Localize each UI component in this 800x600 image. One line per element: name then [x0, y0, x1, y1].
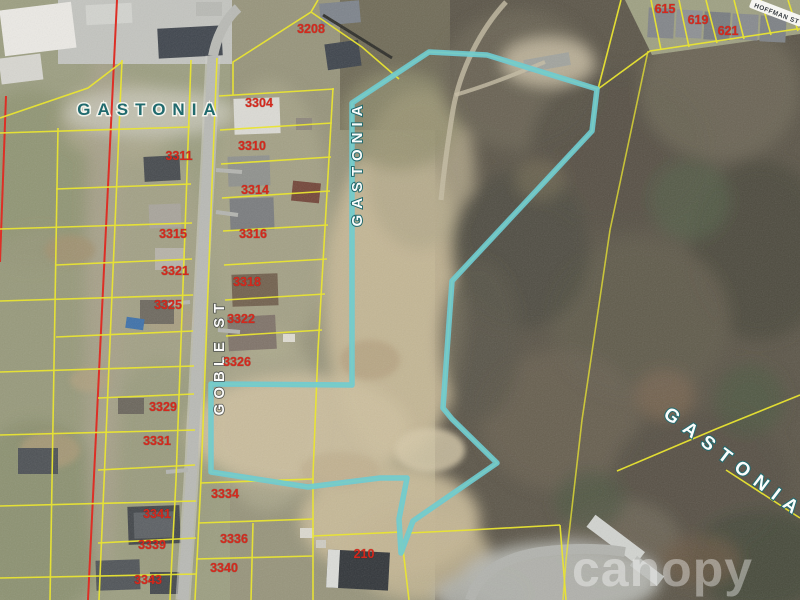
parcel-number-label: 3336	[220, 532, 248, 546]
parcel-number-label: 3325	[154, 298, 182, 312]
parcel-number-label: 3310	[238, 139, 266, 153]
map-canvas[interactable]: GASTONIAGASTONIAGASTONIA GOBLE STHOFFMAN…	[0, 0, 800, 600]
parcel-number-label: 621	[718, 24, 739, 38]
parcel-number-label: 615	[655, 2, 676, 16]
parcel-number-label: 3341	[143, 507, 171, 521]
watermark-logo: canopy	[572, 541, 753, 597]
parcel-number-label: 3322	[227, 312, 255, 326]
city-label-gastonia: GASTONIA	[77, 100, 222, 119]
parcel-number-label: 3334	[211, 487, 239, 501]
parcel-number-label: 3315	[159, 227, 187, 241]
parcel-number-label: 210	[354, 547, 375, 561]
parcel-number-label: 619	[688, 13, 709, 27]
parcel-number-label: 3340	[210, 561, 238, 575]
parcel-number-label: 3318	[233, 275, 261, 289]
parcel-number-label: 3339	[138, 538, 166, 552]
city-label-gastonia: GASTONIA	[349, 100, 366, 227]
parcel-number-label: 3331	[143, 434, 171, 448]
parcel-number-label: 3321	[161, 264, 189, 278]
parcel-number-label: 3208	[297, 22, 325, 36]
parcel-number-label: 3311	[165, 149, 192, 163]
parcel-number-label: 3326	[223, 355, 251, 369]
parcel-number-label: 3343	[134, 573, 162, 587]
aerial-parcel-map[interactable]: GASTONIAGASTONIAGASTONIA GOBLE STHOFFMAN…	[0, 0, 800, 600]
parcel-number-label: 3329	[149, 400, 177, 414]
parcel-number-label: 3314	[241, 183, 269, 197]
parcel-number-label: 3316	[239, 227, 267, 241]
parcel-number-label: 3304	[245, 96, 273, 110]
